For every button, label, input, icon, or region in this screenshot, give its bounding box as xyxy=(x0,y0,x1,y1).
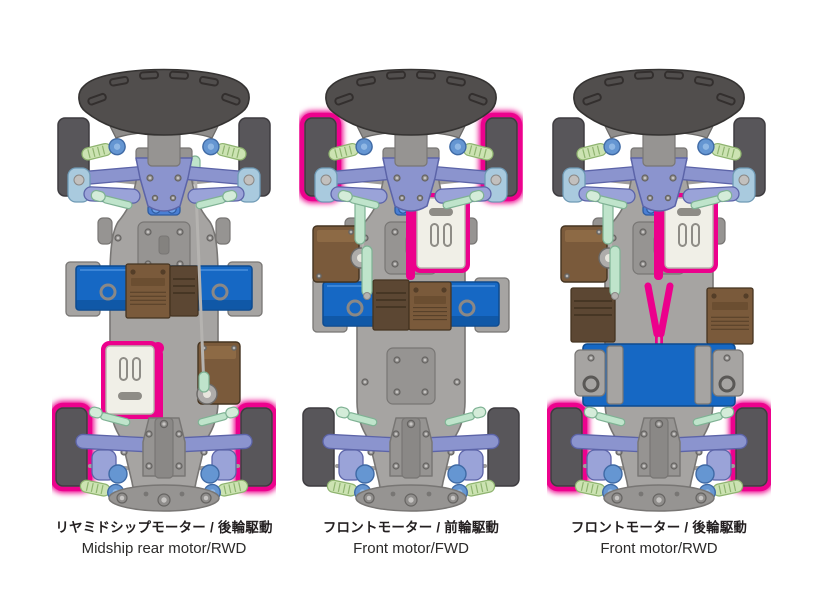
label-japanese: フロントモーター / 後輪駆動 xyxy=(547,520,771,536)
chassis-front-fwd xyxy=(302,70,520,512)
caption-midship-rwd: リヤミドシップモーター / 後輪駆動 Midship rear motor/RW… xyxy=(52,520,276,557)
chassis-illustration-front-fwd xyxy=(299,52,523,518)
motor xyxy=(104,344,157,417)
receiver-unit xyxy=(409,282,451,330)
front-bumper xyxy=(326,70,496,136)
caption-front-fwd: フロントモーター / 前輪駆動 Front motor/FWD xyxy=(299,520,523,557)
esc-unit xyxy=(170,266,198,316)
label-english: Midship rear motor/RWD xyxy=(52,540,276,557)
esc-unit xyxy=(571,288,615,342)
chassis-comparison-board: リヤミドシップモーター / 後輪駆動 Midship rear motor/RW… xyxy=(0,0,821,616)
chassis-illustration-midship-rwd xyxy=(52,52,276,518)
chassis-svg-front-fwd xyxy=(299,52,523,518)
receiver-unit xyxy=(707,288,753,344)
rear-bumper xyxy=(604,485,714,511)
label-english: Front motor/RWD xyxy=(547,540,771,557)
battery xyxy=(575,344,743,406)
front-bumper xyxy=(79,70,249,136)
esc-unit xyxy=(373,280,409,330)
rear-bumper xyxy=(109,485,219,511)
chassis-midship-rwd xyxy=(53,70,275,512)
label-english: Front motor/FWD xyxy=(299,540,523,557)
chassis-illustration-front-rwd xyxy=(547,52,771,518)
caption-front-rwd: フロントモーター / 後輪駆動 Front motor/RWD xyxy=(547,520,771,557)
variant-midship-rwd: リヤミドシップモーター / 後輪駆動 Midship rear motor/RW… xyxy=(52,52,276,557)
front-bumper xyxy=(574,70,744,136)
chassis-svg-front-rwd xyxy=(547,52,771,518)
rear-bumper xyxy=(356,485,466,511)
variant-front-rwd: フロントモーター / 後輪駆動 Front motor/RWD xyxy=(547,52,771,557)
variant-front-fwd: フロントモーター / 前輪駆動 Front motor/FWD xyxy=(299,52,523,557)
receiver-unit xyxy=(126,264,170,318)
label-japanese: フロントモーター / 前輪駆動 xyxy=(299,520,523,536)
chassis-svg-midship-rwd xyxy=(52,52,276,518)
chassis-front-rwd xyxy=(548,70,770,512)
label-japanese: リヤミドシップモーター / 後輪駆動 xyxy=(52,520,276,536)
